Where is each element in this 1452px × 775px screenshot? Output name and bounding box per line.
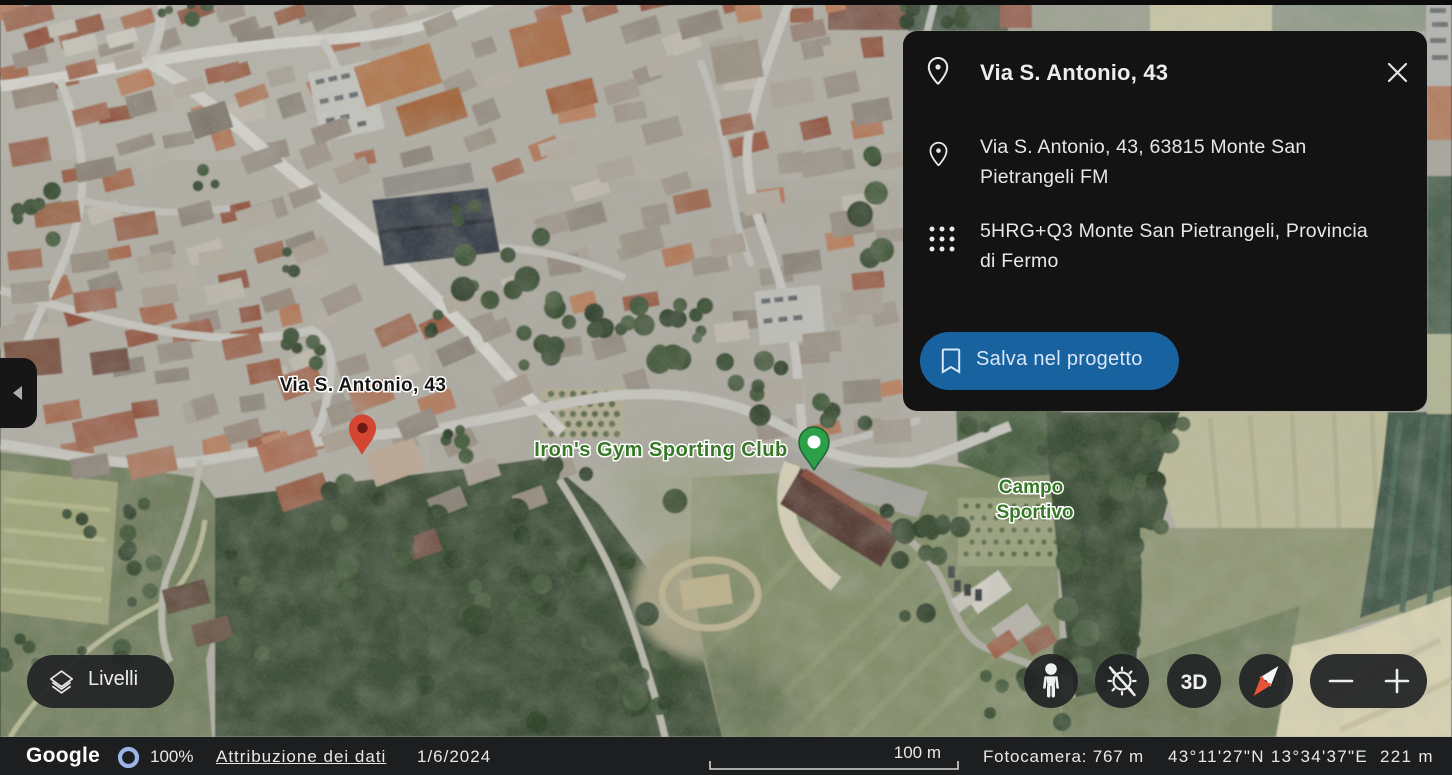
svg-text:3D: 3D xyxy=(1181,671,1208,694)
svg-text:Iron's Gym Sporting Club: Iron's Gym Sporting Club xyxy=(534,439,787,461)
svg-text:Campo: Campo xyxy=(999,477,1063,498)
svg-text:100 m: 100 m xyxy=(894,743,941,762)
svg-text:Via S. Antonio, 43: Via S. Antonio, 43 xyxy=(280,375,447,396)
svg-text:Sportivo: Sportivo xyxy=(996,502,1073,523)
